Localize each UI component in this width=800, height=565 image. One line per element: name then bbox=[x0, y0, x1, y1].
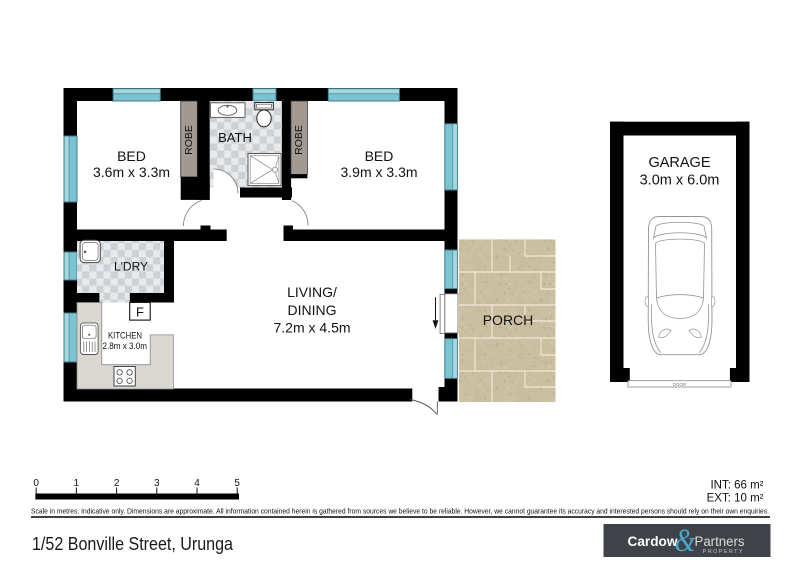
svg-text:3.6m x 3.3m: 3.6m x 3.3m bbox=[93, 164, 170, 180]
svg-text:1/52 Bonville Street, Urunga: 1/52 Bonville Street, Urunga bbox=[32, 534, 234, 554]
svg-text:F: F bbox=[136, 305, 144, 320]
svg-text:PROPERTY: PROPERTY bbox=[703, 549, 744, 555]
svg-text:ROBE: ROBE bbox=[293, 125, 305, 155]
svg-text:BED: BED bbox=[117, 148, 146, 164]
svg-text:2.8m x 3.0m: 2.8m x 3.0m bbox=[103, 341, 148, 351]
svg-text:Partners: Partners bbox=[695, 534, 745, 549]
svg-text:GARAGE: GARAGE bbox=[648, 155, 710, 171]
svg-text:Scale in metres. Indicative on: Scale in metres. Indicative only. Dimens… bbox=[31, 509, 769, 516]
svg-text:INT: 66 m²: INT: 66 m² bbox=[710, 480, 763, 492]
svg-text:ROBE: ROBE bbox=[183, 125, 195, 155]
svg-text:3.9m x 3.3m: 3.9m x 3.3m bbox=[340, 164, 417, 180]
svg-text:Cardow: Cardow bbox=[628, 534, 678, 549]
svg-text:PORCH: PORCH bbox=[483, 312, 534, 328]
svg-text:7.2m x 4.5m: 7.2m x 4.5m bbox=[273, 320, 350, 336]
svg-text:KITCHEN: KITCHEN bbox=[108, 331, 142, 341]
svg-text:3: 3 bbox=[154, 478, 160, 489]
svg-text:3.0m x 6.0m: 3.0m x 6.0m bbox=[640, 173, 720, 189]
svg-text:4: 4 bbox=[194, 478, 200, 489]
svg-text:1: 1 bbox=[74, 478, 80, 489]
svg-text:EXT: 10 m²: EXT: 10 m² bbox=[707, 493, 764, 505]
svg-text:0: 0 bbox=[33, 478, 39, 489]
svg-text:LIVING/: LIVING/ bbox=[287, 284, 337, 300]
svg-text:BED: BED bbox=[365, 148, 394, 164]
svg-text:&: & bbox=[675, 521, 697, 558]
svg-text:DINING: DINING bbox=[288, 302, 337, 318]
svg-text:5: 5 bbox=[234, 478, 240, 489]
svg-text:2: 2 bbox=[114, 478, 120, 489]
svg-text:L'DRY: L'DRY bbox=[114, 260, 148, 274]
svg-text:BATH: BATH bbox=[218, 130, 252, 145]
svg-text:DOOR: DOOR bbox=[673, 382, 687, 387]
